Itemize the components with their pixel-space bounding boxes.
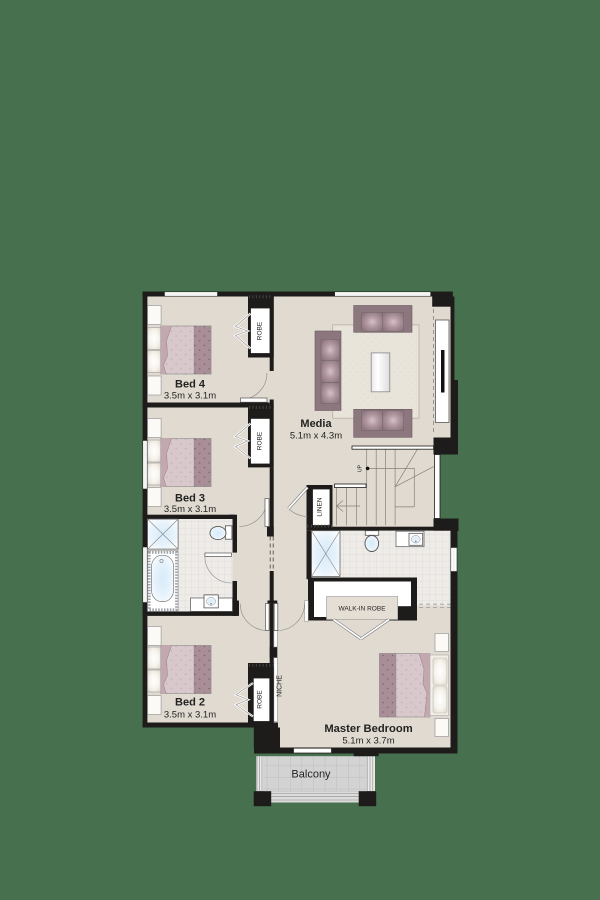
svg-text:Bed 2: Bed 2 [175,697,205,709]
svg-text:NICHE: NICHE [277,675,284,697]
svg-text:5.1m x 4.3m: 5.1m x 4.3m [290,431,342,442]
svg-text:Bed 3: Bed 3 [175,493,205,505]
svg-text:Master Bedroom: Master Bedroom [324,723,412,735]
svg-text:ROBE: ROBE [257,321,264,340]
svg-text:WALK-IN ROBE: WALK-IN ROBE [338,606,386,613]
svg-text:3.5m x 3.1m: 3.5m x 3.1m [164,504,216,515]
svg-text:UP: UP [358,464,364,472]
svg-text:ROBE: ROBE [257,690,264,709]
svg-text:3.5m x 3.1m: 3.5m x 3.1m [164,391,216,402]
svg-text:ROBE: ROBE [257,431,264,450]
svg-text:3.5m x 3.1m: 3.5m x 3.1m [164,710,216,721]
svg-text:Bed 4: Bed 4 [175,379,206,391]
svg-text:LINEN: LINEN [316,497,323,516]
svg-text:5.1m x 3.7m: 5.1m x 3.7m [342,736,394,747]
svg-text:Media: Media [300,418,332,430]
svg-text:Balcony: Balcony [291,769,331,781]
